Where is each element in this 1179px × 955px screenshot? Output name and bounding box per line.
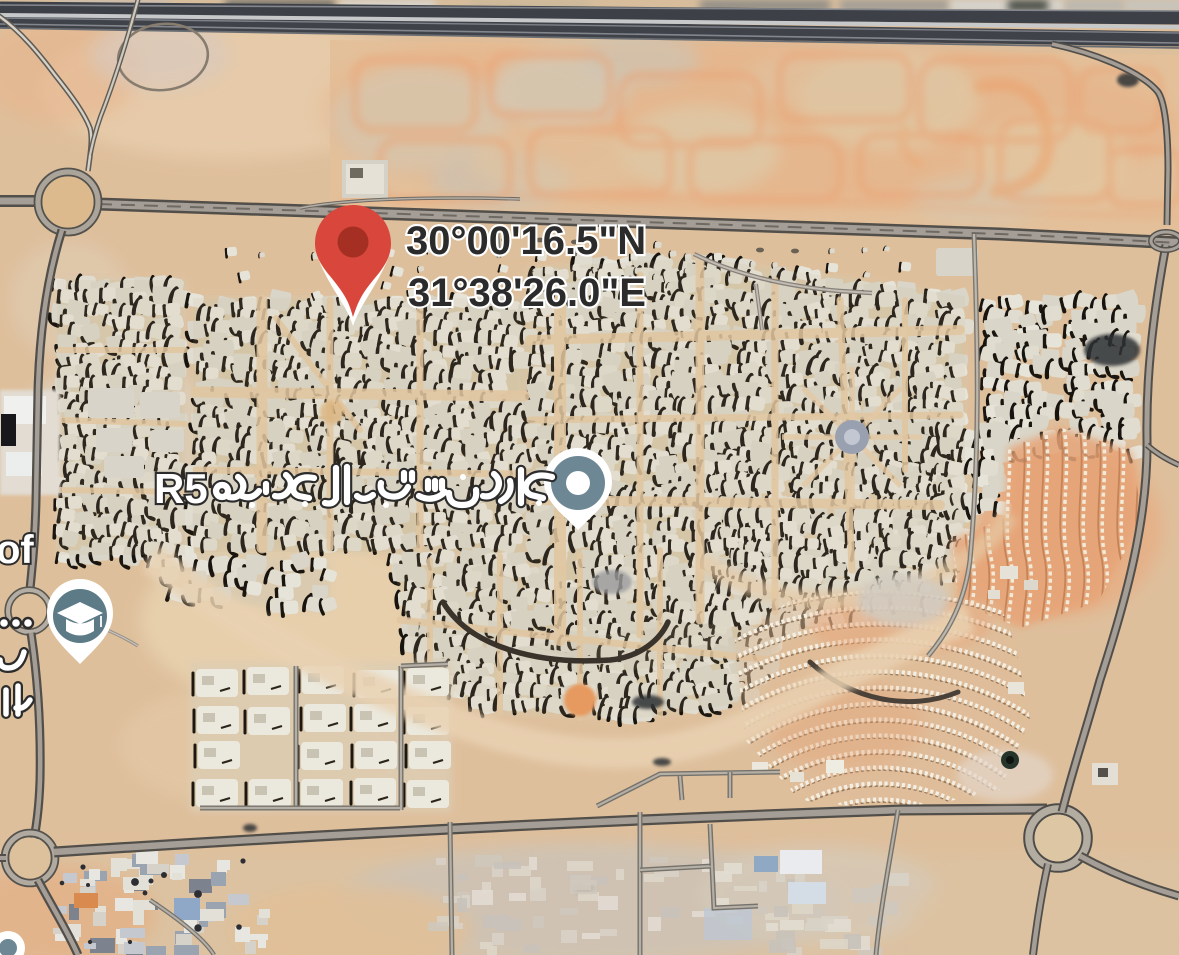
svg-text:30°00'16.5"N: 30°00'16.5"N [406,219,646,263]
svg-text:31°38'26.0"E: 31°38'26.0"E [408,271,646,315]
svg-text:of: of [0,528,34,572]
svg-text:R5: R5 [154,465,208,512]
